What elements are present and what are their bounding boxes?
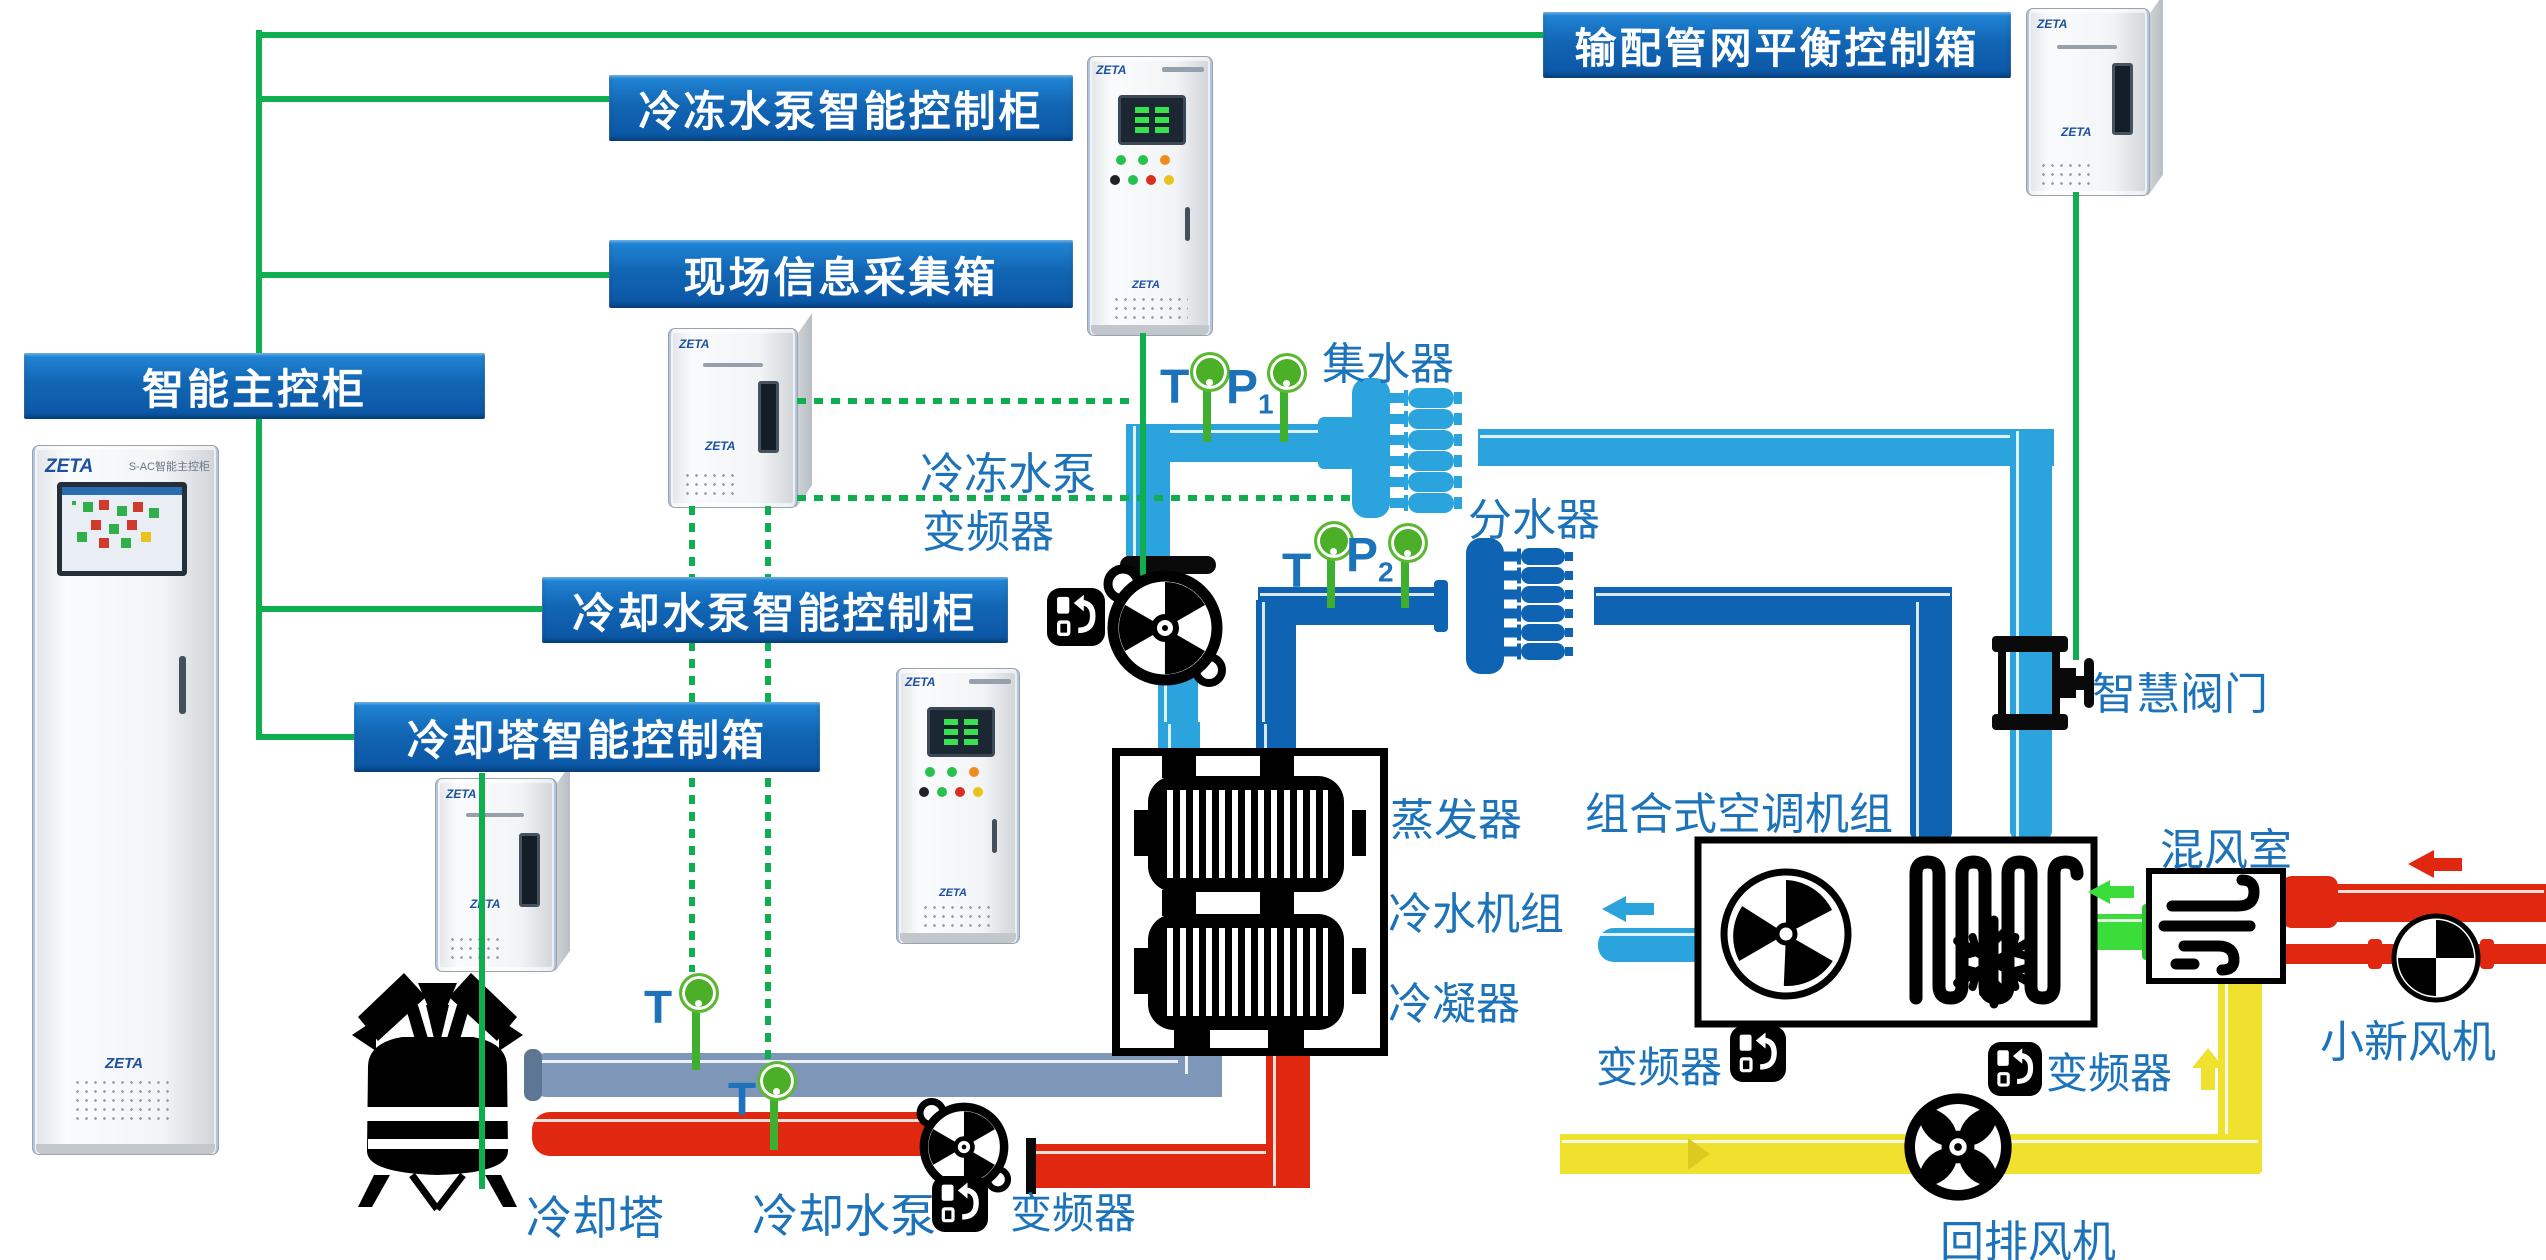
pipe-cooling-return — [528, 1053, 1222, 1097]
label-vfd-ahu: 变频器 — [1596, 1034, 1722, 1095]
label-box-field-info: 现场信息采集箱 — [609, 240, 1073, 308]
cabinet-base — [900, 933, 1016, 943]
zeta-logo: ZETA — [1096, 63, 1126, 77]
cabinet-master: ZETA S-AC智能主控柜 ZETA — [32, 445, 219, 1155]
scada-graphic — [72, 501, 76, 505]
vfd-icon-return-fan — [1988, 1042, 2042, 1096]
valve-body-left — [1998, 650, 2006, 716]
ahu-unit — [1694, 836, 2098, 1028]
cabinet-base — [36, 1144, 215, 1154]
cabinet-cw-pump: ZETA ZETA — [896, 668, 1020, 944]
zeta-logo-bottom: ZETA — [105, 1055, 143, 1072]
label-sensor-p2: P2 — [1346, 528, 1394, 589]
label-return-fan: 回排风机 — [1940, 1206, 2116, 1260]
door-handle — [992, 819, 997, 853]
vfd-icon-ahu-fan — [1730, 1026, 1786, 1082]
label-sensor-t1: T — [1160, 360, 1189, 415]
distributor-header-bar — [1466, 538, 1504, 674]
cabinet-field-info: ZETA ZETA — [668, 328, 798, 508]
label-evaporator: 蒸发器 — [1390, 784, 1522, 848]
cabinet-chw-pump: ZETA ZETA — [1087, 56, 1213, 336]
cooling-tower-icon — [350, 955, 525, 1213]
pipe-cooling-supply-riser — [1266, 1046, 1310, 1188]
valve-body-right — [2052, 650, 2060, 716]
p-sub: 2 — [1378, 557, 1394, 588]
duct-outdoor-air-bulge — [2282, 876, 2338, 928]
label-collector: 集水器 — [1322, 328, 1454, 392]
model-text — [703, 363, 763, 367]
zeta-logo: ZETA — [446, 787, 476, 801]
cabinet-model-text: S-AC智能主控柜 — [129, 458, 210, 474]
label-vfd-return-fan: 变频器 — [2046, 1040, 2172, 1101]
pipe-ahu-supply-stub — [1598, 928, 1698, 962]
label-vfd-cooling-pump: 变频器 — [1010, 1180, 1136, 1241]
zeta-logo-mid: ZETA — [470, 897, 500, 911]
zeta-logo-mid: ZETA — [705, 439, 735, 453]
sensor-stem-tower-t1 — [692, 1004, 700, 1070]
chilled-water-pump-icon — [1095, 558, 1235, 698]
hmi-screen — [57, 482, 187, 576]
valve-actuator-stem — [2076, 676, 2084, 690]
zeta-logo: ZETA — [679, 337, 709, 351]
cabinet-side — [796, 313, 812, 508]
indicator-lights-row2 — [1110, 175, 1174, 185]
arrow-return-air-right — [1688, 1138, 1710, 1170]
indicator-lights-row1 — [1116, 155, 1170, 165]
fresh-fan-flange-right — [2480, 939, 2494, 969]
network-line-cw-pump — [256, 606, 546, 612]
label-chiller: 冷水机组 — [1388, 878, 1564, 942]
pipe-chws-main — [1594, 587, 1952, 625]
pipe-chw-flange — [1318, 417, 1356, 469]
p-sub: 1 — [1258, 389, 1274, 420]
network-line-to-smart-valve — [2073, 192, 2079, 660]
network-dotted-to-sensors — [797, 398, 1132, 404]
cabinet-distribution: ZETA ZETA — [2026, 8, 2150, 196]
network-line-top — [256, 32, 1546, 38]
pipe-chws-ahu-riser — [1910, 600, 1952, 840]
label-box-master: 智能主控柜 — [24, 353, 485, 419]
label-ahu: 组合式空调机组 — [1585, 778, 1893, 842]
vent-holes — [921, 903, 995, 929]
chiller-unit — [1112, 748, 1388, 1056]
indicator-lights-row1 — [925, 767, 979, 777]
network-line-tower — [256, 734, 360, 740]
pipe-chws-flange — [1434, 580, 1448, 632]
sensor-p2 — [1388, 523, 1428, 563]
indicator-lights-row2 — [919, 787, 983, 797]
label-sensor-p1: P1 — [1226, 360, 1274, 421]
zeta-logo-bottom: ZETA — [1132, 279, 1160, 291]
label-cooling-tower: 冷却塔 — [526, 1182, 664, 1248]
zeta-logo-mid: ZETA — [2061, 125, 2091, 139]
label-box-chw-pump: 冷冻水泵智能控制柜 — [609, 75, 1073, 141]
model-text — [969, 679, 1011, 684]
label-chw-pump-vfd-line1: 冷冻水泵 — [920, 438, 1096, 502]
vent-holes — [73, 1078, 173, 1126]
door-handle — [1185, 207, 1190, 241]
label-box-distribution: 输配管网平衡控制箱 — [1543, 12, 2011, 78]
vent-holes — [683, 471, 739, 497]
pipe-chw-return-main — [1478, 429, 2054, 466]
vent-holes — [1112, 295, 1188, 321]
vfd-icon-cooling-pump — [932, 1176, 988, 1232]
model-text — [466, 813, 524, 817]
sensor-tower-t2 — [757, 1061, 797, 1101]
vfd-icon-chw-pump — [1047, 588, 1105, 646]
zeta-logo: ZETA — [2037, 17, 2067, 31]
controller-display — [1118, 95, 1186, 145]
sensor-tower-t1 — [679, 973, 719, 1013]
model-text — [2057, 45, 2117, 49]
label-chw-pump-vfd-line2: 变频器 — [922, 496, 1054, 560]
valve-actuator — [2060, 668, 2076, 698]
valve-flange-bottom — [1992, 714, 2068, 730]
network-line-to-cooling-tower — [479, 773, 485, 1189]
pipe-chw-valve-riser — [2010, 429, 2052, 839]
label-mixing-room: 混风室 — [2160, 814, 2292, 878]
display-slit — [758, 381, 779, 453]
label-cooling-pump: 冷却水泵 — [752, 1180, 936, 1246]
controller-display — [927, 707, 995, 757]
zeta-logo: ZETA — [905, 675, 935, 689]
collector-branches — [1390, 388, 1470, 514]
network-line-chw-pump — [256, 96, 612, 102]
label-smart-valve: 智慧阀门 — [2092, 658, 2268, 722]
label-condenser: 冷凝器 — [1388, 968, 1520, 1032]
label-box-tower: 冷却塔智能控制箱 — [354, 702, 820, 772]
collector-header-bar — [1352, 378, 1390, 518]
label-fresh-fan: 小新风机 — [2320, 1006, 2496, 1070]
label-box-cw-pump: 冷却水泵智能控制柜 — [542, 577, 1008, 643]
p-letter: P — [1226, 361, 1258, 414]
model-text — [1162, 67, 1204, 72]
display-slit — [2112, 63, 2133, 135]
label-sensor-tower-t2: T — [728, 1072, 756, 1126]
fresh-air-fan-icon — [2390, 912, 2482, 1004]
pipe-cooling-return-cap — [524, 1049, 542, 1101]
door-handle — [179, 656, 186, 714]
label-sensor-t2: T — [1282, 544, 1311, 599]
pipe-chw-pump-riser — [1126, 424, 1170, 564]
hvac-control-diagram: ZETA S-AC智能主控柜 ZETA ZETA ZETA ZETA Z — [0, 0, 2546, 1260]
zeta-logo-bottom: ZETA — [939, 887, 967, 899]
distributor-branches — [1504, 548, 1590, 664]
cabinet-side — [2148, 0, 2163, 196]
vent-holes — [448, 935, 502, 961]
mixing-box — [2146, 868, 2286, 984]
cabinet-base — [1091, 325, 1209, 335]
p-letter: P — [1346, 529, 1378, 582]
sensor-t1 — [1190, 352, 1230, 392]
network-line-field-info — [256, 272, 612, 278]
zeta-logo: ZETA — [45, 456, 93, 478]
label-distributor: 分水器 — [1468, 484, 1600, 548]
cabinet-tower: ZETA ZETA — [435, 778, 557, 972]
return-fan-icon — [1900, 1089, 2016, 1205]
fresh-fan-flange-left — [2368, 939, 2382, 969]
vent-holes — [2039, 161, 2093, 185]
display-slit — [519, 833, 540, 907]
label-sensor-tower-t1: T — [644, 980, 672, 1034]
cabinet-side — [555, 765, 570, 972]
